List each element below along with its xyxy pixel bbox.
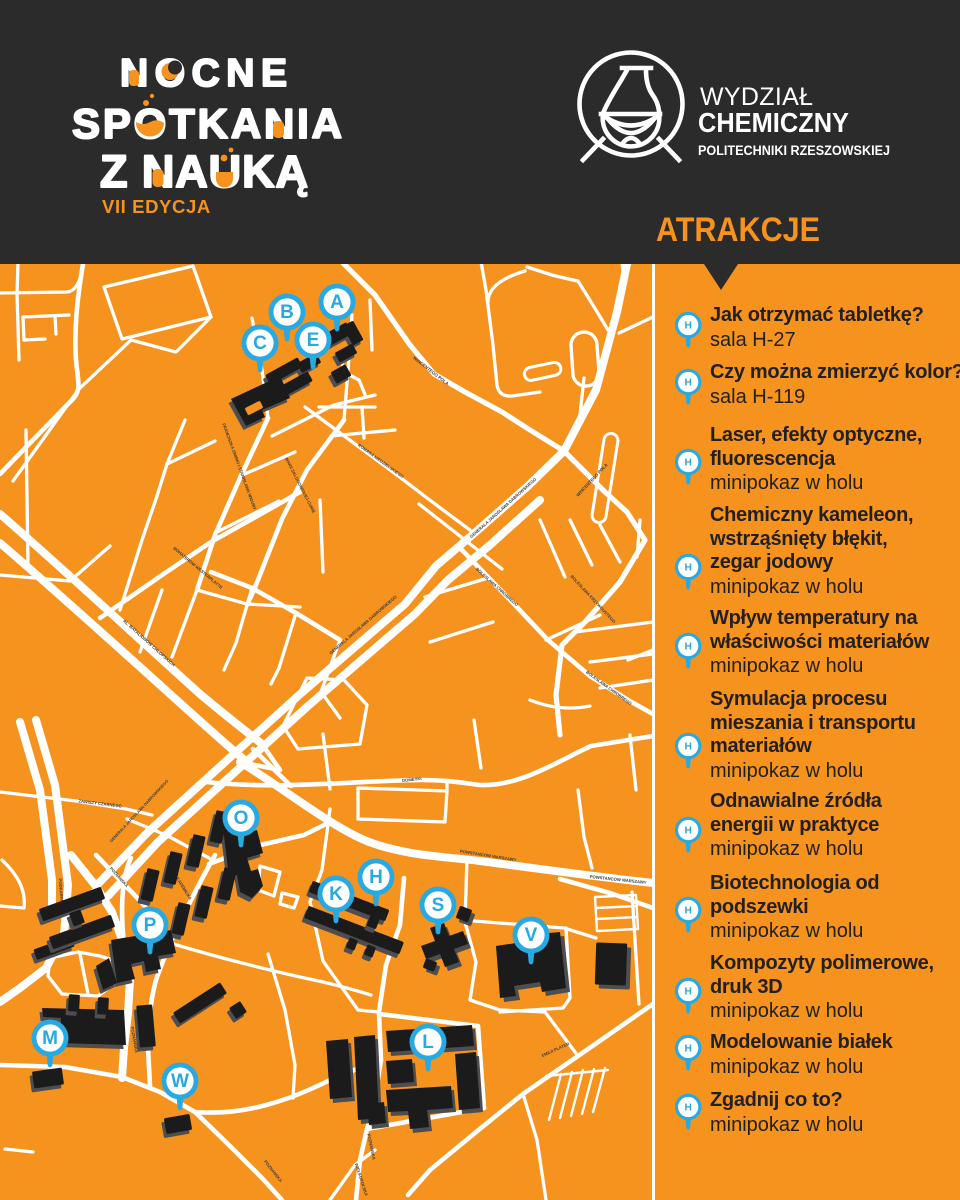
svg-text:H: H bbox=[685, 458, 692, 469]
svg-text:V: V bbox=[525, 925, 538, 946]
svg-text:CHEMICZNY: CHEMICZNY bbox=[698, 107, 849, 138]
svg-text:ATRAKCJE: ATRAKCJE bbox=[656, 211, 820, 249]
svg-text:EMILII PLATER: EMILII PLATER bbox=[541, 1041, 570, 1058]
svg-text:ZAWISZY CZARNEGO: ZAWISZY CZARNEGO bbox=[78, 798, 123, 808]
svg-text:SPOTKANIA: SPOTKANIA bbox=[72, 100, 342, 147]
svg-text:A: A bbox=[330, 292, 344, 313]
svg-text:NOCNE: NOCNE bbox=[120, 52, 287, 95]
svg-text:FRANCISZKA ZWIRKI I STANISLAWA: FRANCISZKA ZWIRKI I STANISLAWA WIGURY bbox=[221, 422, 257, 510]
svg-text:H: H bbox=[685, 742, 692, 753]
svg-text:P: P bbox=[144, 915, 157, 936]
svg-text:K: K bbox=[329, 884, 343, 905]
svg-text:H: H bbox=[685, 563, 692, 574]
svg-text:E: E bbox=[307, 330, 320, 351]
svg-text:GENERALA JAROSLAWA DABROWSKIEG: GENERALA JAROSLAWA DABROWSKIEGO bbox=[328, 594, 398, 656]
svg-text:H: H bbox=[685, 987, 692, 998]
svg-text:H: H bbox=[685, 1103, 692, 1114]
svg-text:L: L bbox=[422, 1032, 434, 1053]
svg-text:M: M bbox=[42, 1028, 58, 1049]
svg-text:H: H bbox=[685, 826, 692, 837]
svg-text:H: H bbox=[685, 906, 692, 917]
svg-text:W: W bbox=[171, 1071, 189, 1092]
svg-text:S: S bbox=[432, 895, 445, 916]
svg-text:VII EDYCJA: VII EDYCJA bbox=[102, 196, 211, 217]
svg-text:H: H bbox=[685, 378, 692, 389]
svg-text:BOLESLAWA CHROBREGO: BOLESLAWA CHROBREGO bbox=[475, 567, 520, 608]
svg-text:Z NAUKĄ: Z NAUKĄ bbox=[100, 146, 308, 197]
svg-text:H: H bbox=[685, 1044, 692, 1055]
svg-text:H: H bbox=[685, 642, 692, 653]
svg-text:O: O bbox=[234, 808, 249, 829]
svg-text:POLITECHNIKI RZESZOWSKIEJ: POLITECHNIKI RZESZOWSKIEJ bbox=[698, 143, 890, 158]
svg-text:H: H bbox=[685, 321, 692, 332]
svg-text:WINCENTEGO POLA: WINCENTEGO POLA bbox=[412, 355, 450, 386]
svg-text:B: B bbox=[280, 302, 294, 323]
svg-text:C: C bbox=[253, 333, 267, 354]
svg-text:ROMANA NIEDZIELSKIEGO: ROMANA NIEDZIELSKIEGO bbox=[357, 443, 405, 480]
svg-text:BOLESLAWA CHROBREGO: BOLESLAWA CHROBREGO bbox=[585, 670, 633, 707]
svg-text:H: H bbox=[369, 867, 383, 888]
